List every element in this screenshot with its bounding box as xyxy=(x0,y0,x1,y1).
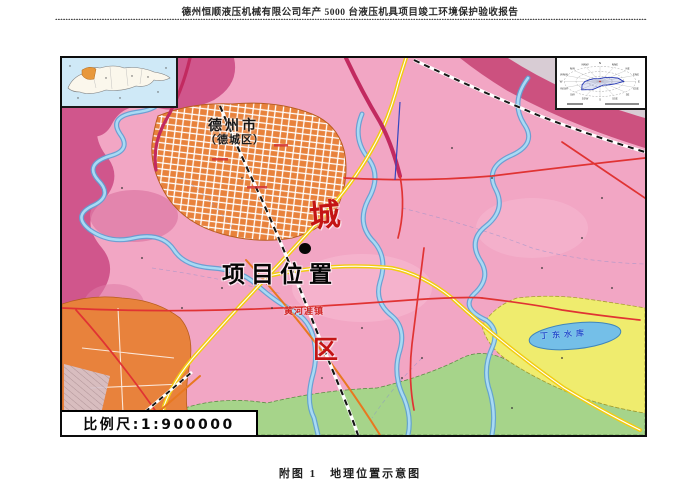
project-location-label: 项目位置 xyxy=(222,255,338,289)
svg-text:SSE: SSE xyxy=(612,96,618,100)
svg-text:N: N xyxy=(599,61,601,65)
svg-text:S: S xyxy=(599,98,601,102)
wind-rose-diagram: NNNENEENEEESESESSESSSWSWWSWWWNWNWNNW xyxy=(557,58,643,104)
svg-text:SW: SW xyxy=(570,92,575,96)
svg-text:ESE: ESE xyxy=(633,86,639,90)
svg-text:E: E xyxy=(638,79,640,83)
project-location-marker xyxy=(299,243,311,254)
svg-text:NE: NE xyxy=(626,66,630,70)
svg-text:NW: NW xyxy=(570,66,575,70)
report-page: { "page": { "header_title": "德州恒顺液压机械有限公… xyxy=(0,0,700,477)
svg-text:W: W xyxy=(560,79,563,83)
inset-dezhou-highlight xyxy=(82,67,96,79)
svg-text:SSW: SSW xyxy=(582,96,589,100)
svg-text:NNE: NNE xyxy=(612,62,618,66)
scale-bar: 比例尺:1:900000 xyxy=(60,410,258,437)
svg-text:SE: SE xyxy=(626,92,630,96)
svg-text:NNW: NNW xyxy=(581,62,588,66)
svg-text:WNW: WNW xyxy=(560,72,568,76)
svg-text:WSW: WSW xyxy=(560,86,568,90)
district-char-qu: 区 xyxy=(313,330,338,366)
figure-caption: 附图 1 地理位置示意图 xyxy=(0,465,700,481)
province-inset-map xyxy=(62,58,178,108)
town-label: 黄河涯镇 xyxy=(284,304,324,317)
scale-label: 比例尺:1:900000 xyxy=(83,414,234,434)
wind-rose-caption-marks xyxy=(567,103,639,106)
page-header-title: 德州恒顺液压机械有限公司年产 5000 台液压机具项目竣工环境保护验收报告 xyxy=(0,4,700,18)
location-map: NNNENEENEEESESESSESSSWSWWSWWWNWNWNNW 德州市… xyxy=(60,56,647,437)
map-canvas xyxy=(62,58,645,435)
svg-text:ENE: ENE xyxy=(633,72,639,76)
wind-rose: NNNENEENEEESESESSESSSWSWWSWWWNWNWNNW xyxy=(555,58,645,110)
header-divider xyxy=(55,17,647,20)
district-label: （德城区） xyxy=(205,131,265,147)
district-char-cheng: 城 xyxy=(307,189,342,237)
